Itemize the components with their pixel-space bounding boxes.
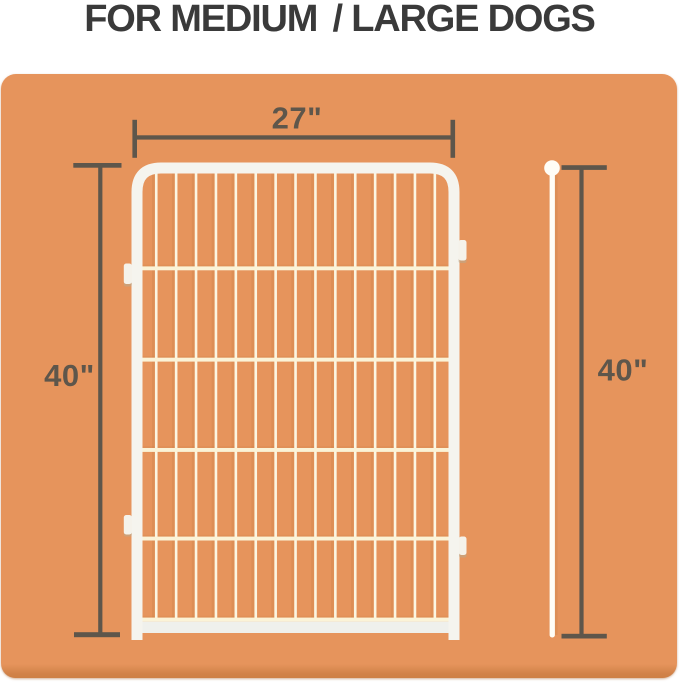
- svg-text:40": 40": [598, 353, 649, 388]
- svg-text:40": 40": [44, 358, 95, 393]
- svg-text:27": 27": [272, 101, 323, 136]
